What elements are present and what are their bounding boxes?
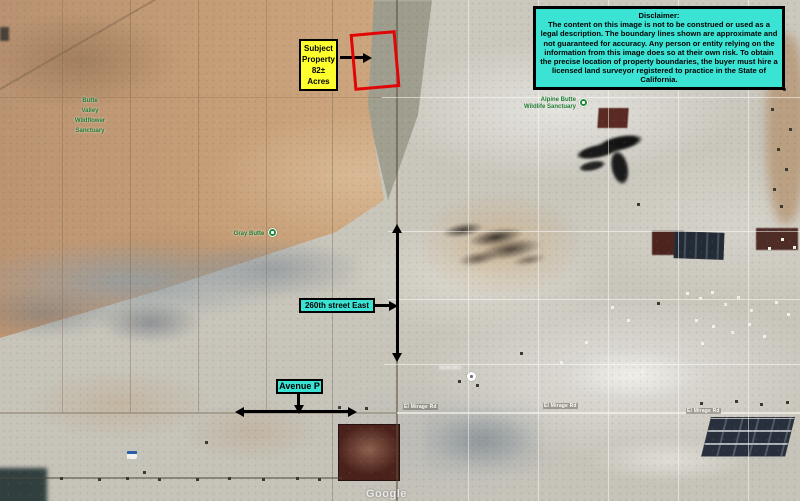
aerial-map: Butte Valley Wildflower Sanctuary Gray B… [0, 0, 800, 501]
park-icon [268, 228, 277, 237]
property-boundary [350, 30, 401, 91]
road-line [388, 231, 800, 232]
trees-structures-cluster [0, 0, 3, 3]
buildings-cluster [0, 0, 3, 3]
park-label-line: Sanctuary [62, 126, 118, 136]
road-line [0, 97, 382, 98]
street-label-text: 260th street East [305, 302, 369, 310]
avenue-extent-arrowhead-left [235, 407, 244, 417]
terrain-wash-dark [80, 295, 220, 350]
street-extent-arrowhead-down [392, 353, 402, 362]
road-line [384, 364, 800, 365]
street-pointer-line [375, 304, 390, 307]
google-watermark: Google [366, 488, 407, 500]
maroon-field [652, 231, 684, 255]
illegible-label-smudge [439, 366, 461, 369]
butte-tan-halo [415, 190, 585, 300]
disclaimer-title: Disclaimer: [539, 11, 779, 20]
road-line [0, 477, 342, 479]
disclaimer-body: The content on this image is not to be c… [539, 20, 779, 84]
street-extent-arrowhead-up [392, 224, 402, 233]
park-label-ne: Alpine Butte Wildlife Sanctuary [520, 97, 576, 111]
park-label-line: Alpine Butte [520, 97, 576, 104]
road-label-el-mirage: El Mirage Rd [543, 403, 578, 409]
subject-property-line: Subject [301, 43, 336, 54]
subject-property-label: Subject Property 82± Acres [299, 39, 338, 91]
road-line [266, 0, 267, 413]
terrain-sw-tan [20, 360, 350, 470]
avenue-p-label: Avenue P [276, 379, 323, 394]
park-label-line: Gray Butte [230, 229, 268, 239]
park-label-center: Gray Butte [230, 229, 268, 239]
road-line [130, 0, 131, 413]
road-line [468, 0, 469, 501]
park-label-line: Valley [62, 106, 118, 116]
park-label-line: Wildlife Sanctuary [520, 104, 576, 111]
road-diagonal [0, 0, 163, 91]
maroon-field [756, 228, 798, 250]
street-extent-arrow-line [396, 232, 399, 354]
subject-property-line: Property [301, 54, 336, 65]
solar-farm [701, 417, 795, 457]
park-label-line: Butte [62, 96, 118, 106]
road-label-el-mirage: El Mirage Rd [686, 408, 721, 414]
road-line [382, 97, 800, 98]
avenue-extent-arrow-line [243, 410, 349, 413]
light-terrain-patch [560, 430, 780, 490]
park-label-line: Wildflower [62, 116, 118, 126]
road-line [388, 299, 800, 300]
park-icon [579, 98, 588, 107]
road-el-mirage [397, 412, 800, 414]
road-label-el-mirage: El Mirage Rd [403, 404, 438, 410]
disclaimer-box: Disclaimer: The content on this image is… [533, 6, 785, 90]
road-line [198, 0, 199, 413]
street-label-260th: 260th street East [299, 298, 375, 313]
butte-ridges [422, 190, 560, 295]
maroon-field [597, 108, 628, 128]
dark-farm-field [338, 424, 400, 481]
dark-corner-patch [0, 468, 47, 501]
road-line [62, 0, 63, 413]
blue-roof-building [127, 451, 137, 459]
park-label-nw: Butte Valley Wildflower Sanctuary [62, 96, 118, 136]
avenue-p-text: Avenue P [279, 382, 320, 391]
solar-array [674, 231, 725, 260]
subject-property-line: 82± Acres [301, 65, 336, 87]
light-terrain-patch [545, 340, 725, 410]
dark-smudge [0, 27, 9, 41]
dry-lake [425, 408, 540, 473]
avenue-extent-arrowhead-right [348, 407, 357, 417]
poi-pin-icon [467, 372, 476, 381]
terrain-wash [0, 225, 410, 350]
dark-butte [572, 118, 656, 198]
